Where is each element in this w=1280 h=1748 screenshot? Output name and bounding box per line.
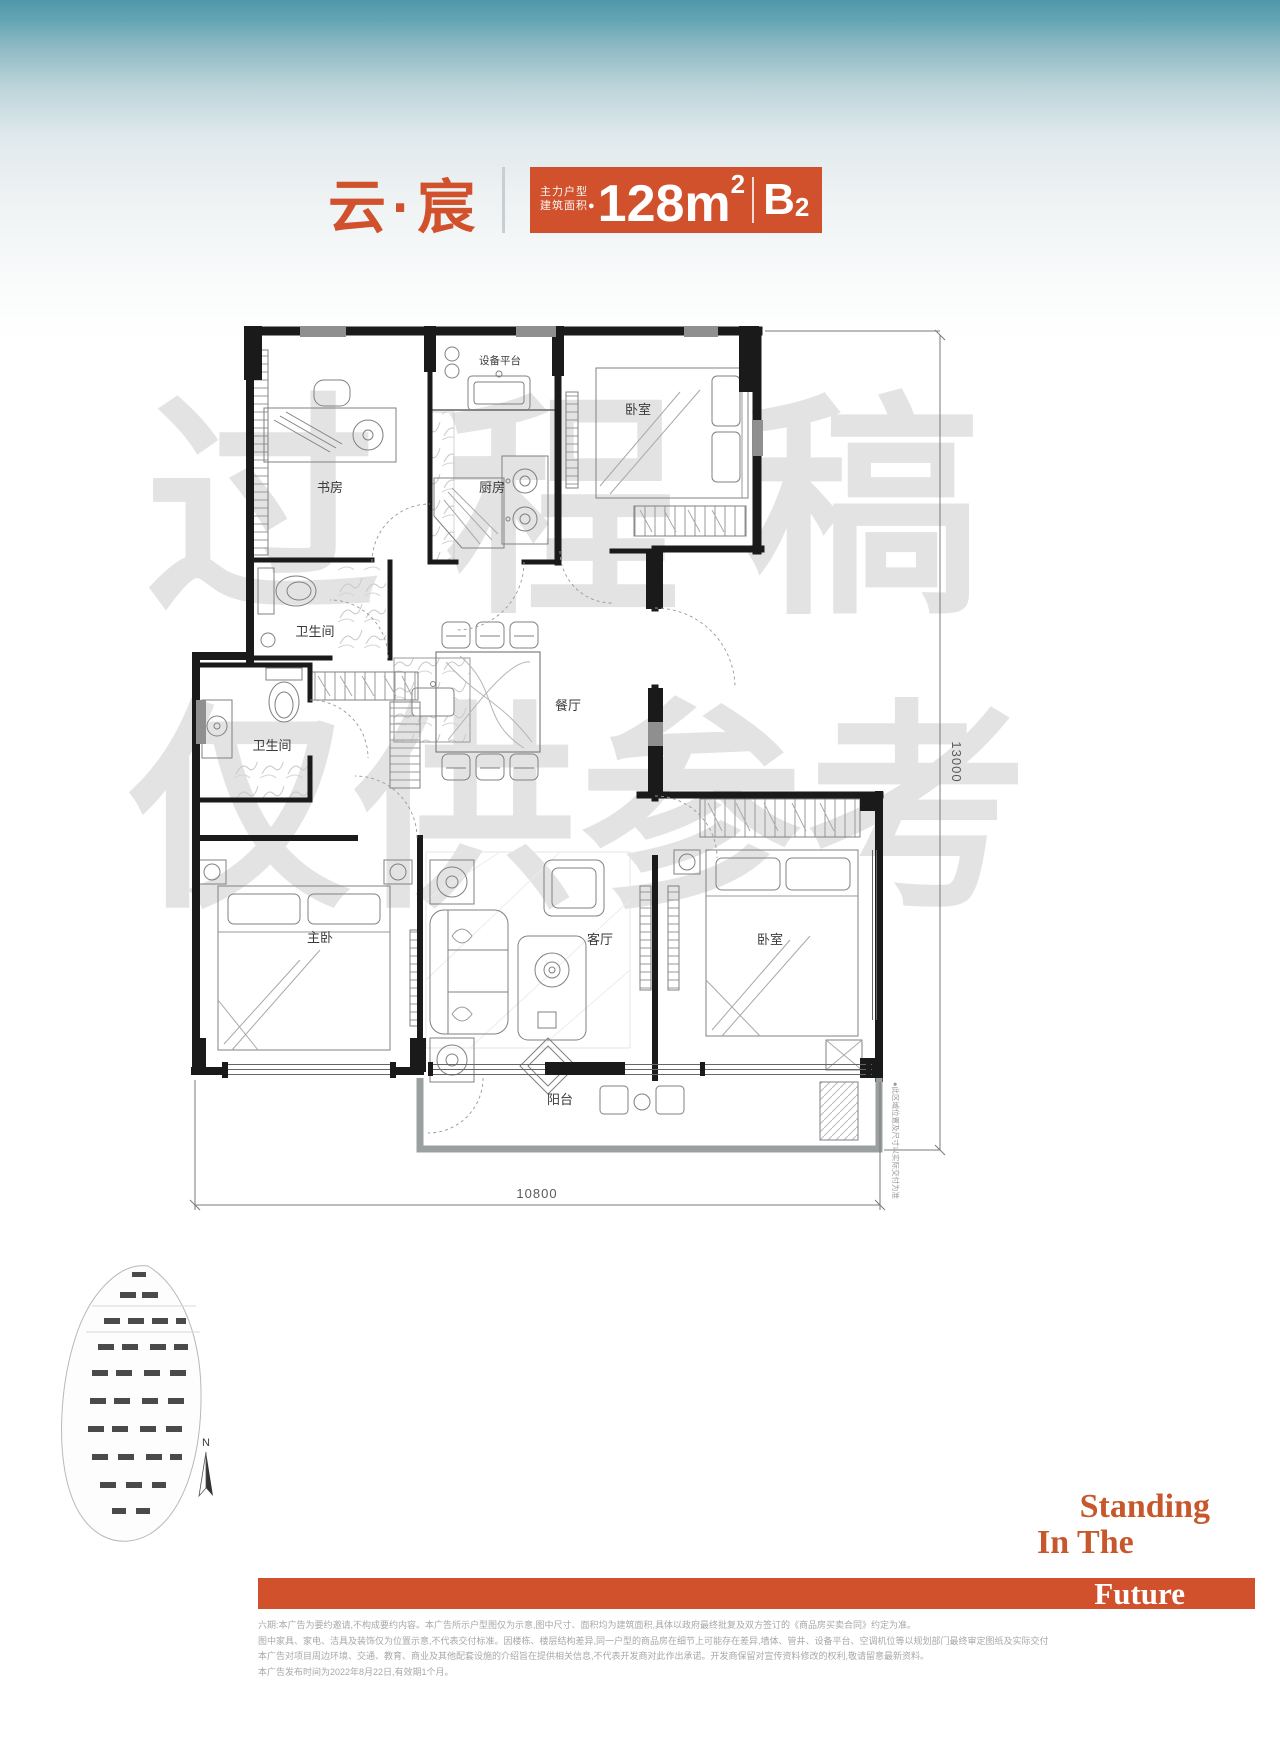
compass-needle-light [199, 1452, 206, 1496]
unit-code: B2 [763, 178, 809, 222]
master-bedroom-furniture [198, 860, 420, 1050]
page-title: 云·宸 [328, 160, 481, 244]
compass: N [186, 1432, 228, 1512]
windows [222, 850, 877, 1078]
disclaimer-line4: 本广告发布时间为2022年8月22日,有效期1个月。 [258, 1665, 1048, 1681]
dimension-height: 13000 [949, 741, 964, 782]
balcony-parapet [420, 1078, 879, 1149]
room-label-bedroom1: 卧室 [625, 402, 651, 417]
dimension-width: 10800 [516, 1186, 557, 1201]
bathroom1-fixtures [258, 566, 386, 654]
badge-subtitle-line2: 建筑面积● [540, 200, 596, 214]
floor-plan: 设备平台 书房 厨房 卧室 卫生间 卫生间 餐厅 主卧 客厅 卧室 阳台 130… [150, 315, 1030, 1225]
room-label-living-room: 客厅 [587, 932, 613, 947]
wall-columns [196, 326, 879, 1078]
room-label-bathroom1: 卫生间 [295, 624, 334, 639]
compass-needle-dark [206, 1452, 213, 1496]
hall-wardrobe [312, 672, 420, 788]
bedroom2-furniture [640, 799, 862, 1070]
badge-subtitle-line1: 主力户型 [540, 186, 596, 200]
slogan-line3: Future [1094, 1576, 1185, 1611]
area-badge: 主力户型 建筑面积● 128m2 B2 [530, 167, 822, 233]
side-note: ●此区域位置及尺寸以实际交付为准 [891, 1082, 901, 1200]
disclaimer-line2: 图中家具、家电、洁具及装饰仅为位置示意,不代表交付标准。因楼栋、楼层结构差异,同… [258, 1634, 1048, 1650]
room-label-dining: 餐厅 [555, 698, 581, 713]
bathroom2-fixtures [202, 668, 308, 798]
living-room-furniture [430, 860, 604, 1094]
area-value: 128m2 [598, 171, 745, 230]
room-label-equipment-platform: 设备平台 [479, 354, 521, 367]
disclaimer-line1: 六期:本广告为要约邀请,不构成要约内容。本广告所示户型图仅为示意,图中尺寸、面积… [258, 1618, 1048, 1634]
unit-code-sub: 2 [795, 194, 809, 220]
walls [195, 331, 880, 1078]
room-label-bedroom2: 卧室 [757, 932, 783, 947]
slogan-line2: In The [1037, 1524, 1134, 1562]
badge-subtitle: 主力户型 建筑面积● [540, 186, 596, 214]
room-label-bathroom2: 卫生间 [252, 738, 291, 753]
title-divider [502, 167, 505, 233]
bedroom1-furniture [566, 368, 748, 536]
disclaimer: 六期:本广告为要约邀请,不构成要约内容。本广告所示户型图仅为示意,图中尺寸、面积… [258, 1618, 1048, 1680]
room-label-kitchen: 厨房 [479, 480, 505, 495]
slogan-bar: Future [258, 1578, 1255, 1609]
disclaimer-line3: 本广告对项目周边环境、交通、教育、商业及其他配套设施的介绍旨在提供相关信息,不代… [258, 1649, 1048, 1665]
study-furniture [252, 350, 396, 555]
room-label-study: 书房 [317, 480, 343, 495]
room-label-master-bedroom: 主卧 [307, 930, 333, 945]
compass-north-label: N [202, 1437, 210, 1449]
kitchen-fixtures [432, 371, 548, 562]
badge-divider [752, 177, 754, 223]
balcony-furniture [600, 1082, 858, 1140]
brochure-page: 云·宸 主力户型 建筑面积● 128m2 B2 过程稿 仅供参考 [0, 0, 1280, 1748]
area-superscript: 2 [731, 169, 745, 199]
room-label-balcony: 阳台 [547, 1092, 573, 1107]
slogan-line1: Standing [1030, 1488, 1210, 1526]
